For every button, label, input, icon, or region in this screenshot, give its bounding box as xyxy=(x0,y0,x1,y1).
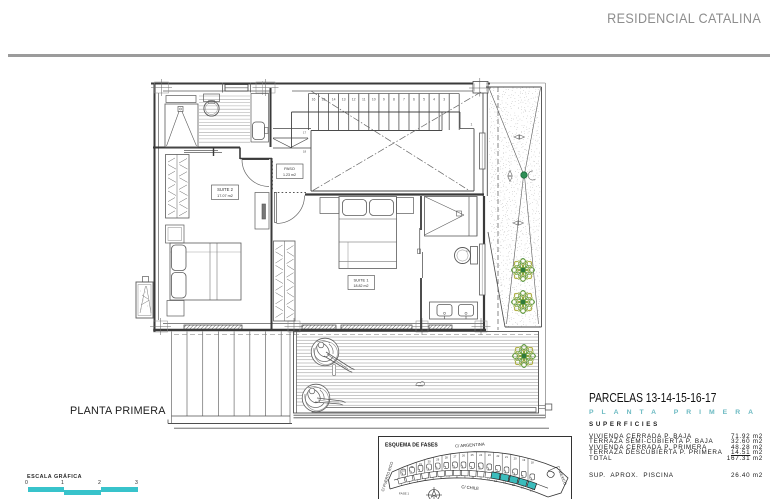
svg-text:28: 28 xyxy=(445,456,448,460)
svg-text:26: 26 xyxy=(462,454,465,458)
svg-text:C/ PUERTO RICO: C/ PUERTO RICO xyxy=(381,461,394,492)
svg-text:25: 25 xyxy=(471,453,474,457)
svg-text:3: 3 xyxy=(417,480,419,483)
svg-text:FASE 1: FASE 1 xyxy=(399,492,410,496)
svg-text:21: 21 xyxy=(505,455,508,459)
svg-text:23: 23 xyxy=(488,453,491,457)
svg-text:20: 20 xyxy=(514,456,517,460)
svg-text:24: 24 xyxy=(479,453,482,457)
svg-text:30: 30 xyxy=(428,460,431,464)
svg-text:2: 2 xyxy=(409,481,411,484)
svg-text:19: 19 xyxy=(522,458,525,462)
svg-text:1: 1 xyxy=(401,483,403,486)
svg-text:27: 27 xyxy=(453,454,456,458)
svg-text:18: 18 xyxy=(531,460,534,464)
svg-text:22: 22 xyxy=(496,454,499,458)
svg-text:5: 5 xyxy=(433,477,435,480)
svg-text:C/ ARGENTINA: C/ ARGENTINA xyxy=(455,441,485,448)
svg-text:ESQUEMA DE FASES: ESQUEMA DE FASES xyxy=(385,443,438,449)
svg-text:C/ CHILE: C/ CHILE xyxy=(461,484,479,491)
svg-text:29: 29 xyxy=(436,457,439,461)
svg-text:4: 4 xyxy=(425,478,427,481)
